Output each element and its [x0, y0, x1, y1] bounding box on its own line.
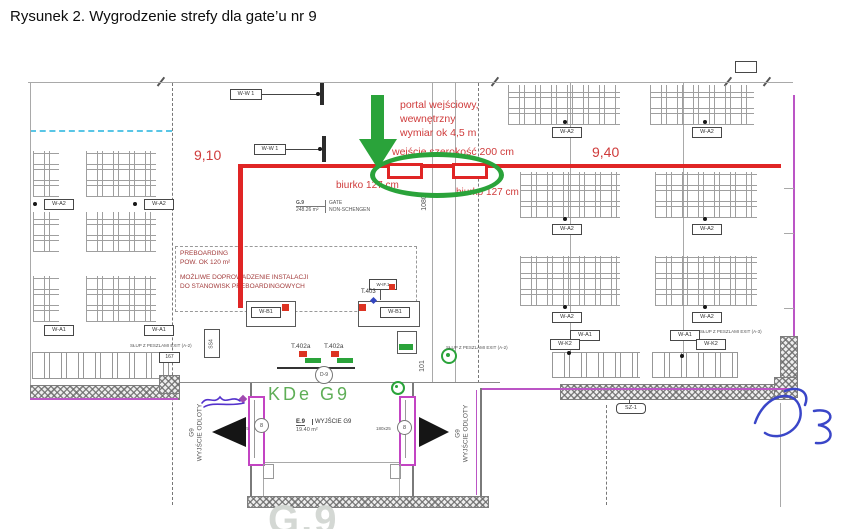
- seat-type-label: W-A2: [552, 312, 582, 323]
- exit-side-g9: G9: [454, 429, 462, 438]
- slup-note-right: SŁUP Z PESZLAMI EXIT (A-3): [700, 329, 762, 334]
- gate-reader-red: [299, 351, 307, 357]
- seat-type-label: W-A2: [692, 224, 722, 235]
- jamb-detail: [263, 464, 274, 479]
- seat-cluster: [520, 172, 620, 218]
- pen-scribble: [806, 405, 846, 453]
- ww1-leader: [258, 94, 318, 95]
- seat-cluster: [655, 172, 757, 218]
- column-marker-box: [735, 61, 757, 73]
- gate-name: GATE: [329, 200, 370, 207]
- bottom-wall-left-magenta: [30, 398, 178, 400]
- door-size-label: 180x25: [376, 426, 391, 431]
- leader-dot: [563, 120, 567, 124]
- kde-gate-text: KDe G9: [268, 384, 350, 405]
- seat-cluster: [86, 276, 156, 322]
- ww1-dot: [316, 92, 320, 96]
- bench-row: [652, 352, 738, 378]
- wall-tick: [784, 308, 794, 309]
- gate-reader-red: [331, 351, 339, 357]
- jamb-detail: [390, 464, 401, 479]
- gridline-end-dot: [680, 354, 684, 358]
- preboarding-area: POW. OK 120 m²: [180, 259, 230, 266]
- door-width-box: 167: [159, 352, 180, 363]
- exit-side-g9: G9: [188, 428, 196, 437]
- ww1-label: W-W 1: [254, 144, 286, 155]
- blue-dashed-zone-line: [30, 130, 172, 132]
- figure-canvas: Rysunek 2. Wygrodzenie strefy dla gate’u…: [0, 0, 852, 529]
- bench-row: [32, 352, 174, 379]
- leader-dot: [563, 305, 567, 309]
- slup-note-left: SŁUP Z PESZLAMI EXIT (A-2): [130, 343, 192, 348]
- ww1-dot: [318, 147, 322, 151]
- seat-type-label: W-A2: [552, 127, 582, 138]
- seat-type-label: W-A2: [144, 199, 174, 210]
- pen-scribble: [745, 383, 815, 445]
- ww1-post: [320, 83, 324, 105]
- axis-dashdot-line: [606, 405, 607, 505]
- room-top-wall: [178, 382, 500, 383]
- room-big-text: G.9: [268, 498, 338, 529]
- d9-marker: D-9: [315, 366, 333, 384]
- column-hatched: [159, 375, 180, 394]
- portal-arrow-shaft: [371, 95, 384, 140]
- gate-area: 248.26 m²: [296, 207, 326, 213]
- seat-strip: [33, 276, 59, 322]
- desk-label: W-B1: [380, 307, 410, 318]
- gate-area-tag: G.9 GATE 248.26 m² NON-SCHENGEN: [296, 200, 370, 213]
- leader-dot: [133, 202, 137, 206]
- gate-code: G.9: [296, 200, 326, 207]
- exit-side-text-right: G9 WYJŚCIE ODLOTY: [454, 397, 471, 471]
- exit-room-code: E.9: [296, 419, 305, 426]
- desk-marker-red: [359, 304, 366, 311]
- t402a-label: T.402a: [324, 343, 344, 350]
- portal-arrow-head: [359, 139, 397, 169]
- leader-dot: [33, 202, 37, 206]
- exit-room-name: WYJŚCIE G9: [312, 419, 351, 425]
- door-number: 8: [260, 423, 263, 429]
- seat-type-label: W-K2: [696, 339, 726, 350]
- seat-cluster: [655, 256, 757, 306]
- preboarding-title: PREBOARDING: [180, 250, 228, 257]
- corridor-wall: [480, 388, 482, 498]
- green-sensor-dot: [446, 353, 450, 357]
- desk-label: W-B1: [251, 307, 281, 318]
- seat-cluster: [508, 85, 620, 125]
- door-number-badge: 8: [254, 418, 269, 433]
- door-number-badge: 8: [397, 420, 412, 435]
- pen-scribble: [200, 391, 248, 409]
- room-divider: [263, 462, 400, 463]
- green-sensor: [391, 381, 405, 395]
- left-wall-line: [30, 82, 31, 400]
- seat-type-label: W-A2: [692, 127, 722, 138]
- dimension-101-text: 101: [419, 360, 426, 372]
- seat-cluster: [650, 85, 754, 125]
- t403-red-marker: [389, 284, 395, 290]
- seat-type-label: W-A1: [44, 325, 74, 336]
- gridline-end-dot: [567, 351, 571, 355]
- fence-line-vertical: [238, 164, 243, 308]
- ww1-label: W-W 1: [230, 89, 262, 100]
- seat-cluster: [86, 151, 156, 197]
- seat-strip: [33, 151, 59, 197]
- door-number: 8: [403, 425, 406, 431]
- seat-type-label: W-A1: [144, 325, 174, 336]
- green-sensor-dot: [395, 385, 398, 388]
- seat-type-label: W-K2: [550, 339, 580, 350]
- top-wall-line: [28, 82, 793, 83]
- fence-dim-right: 9,40: [592, 144, 619, 160]
- exit-side-label: WYJŚCIE ODLOTY: [196, 404, 204, 461]
- gate-zone: NON-SCHENGEN: [329, 207, 370, 213]
- leader-dot: [703, 305, 707, 309]
- as-box-green-bar: [399, 344, 413, 350]
- wall-tick: [784, 233, 794, 234]
- t403-label: T.403: [361, 289, 376, 295]
- leader-dot: [703, 217, 707, 221]
- ww1-post: [322, 136, 326, 162]
- d9-text: D-9: [320, 372, 328, 378]
- ww1-leader: [282, 149, 322, 150]
- exit-side-label: WYJŚCIE ODLOTY: [462, 405, 470, 462]
- portal-note-line3: wymiar ok 4,5 m: [400, 127, 476, 139]
- portal-note-line2: wewnętrzny: [400, 113, 455, 125]
- axis-dashdot-line: [478, 83, 479, 383]
- seat-type-label: W-A2: [44, 199, 74, 210]
- ss4-text: SS4: [209, 339, 215, 348]
- wall-tick: [784, 188, 794, 189]
- slup-note-center: SŁUP Z PESZLAMI EXIT (A-2): [446, 345, 508, 350]
- bench-row: [552, 352, 640, 378]
- desk-marker-red: [282, 304, 289, 311]
- seat-cluster: [86, 212, 156, 252]
- seat-cluster: [520, 256, 620, 306]
- gate-bar-green: [337, 358, 353, 363]
- seat-type-label: W-A2: [692, 312, 722, 323]
- seat-type-label: W-A2: [552, 224, 582, 235]
- leader-dot: [563, 217, 567, 221]
- t402a-label: T.402a: [291, 343, 311, 350]
- gate-bar-green: [305, 358, 321, 363]
- fence-dim-left: 9,10: [194, 147, 221, 163]
- portal-note-line1: portal wejściowy,: [400, 99, 479, 111]
- fence-line-horizontal: [240, 164, 781, 168]
- axis-dashdot-line: [172, 83, 173, 505]
- sz1-label: SZ-1: [616, 403, 646, 414]
- preboarding-note-1: MOŻLIWE DOPROWADZENIE INSTALACJI: [180, 274, 308, 281]
- leader-dot: [703, 120, 707, 124]
- exit-room-area: 19.40 m²: [296, 427, 318, 433]
- figure-caption: Rysunek 2. Wygrodzenie strefy dla gate’u…: [10, 8, 317, 25]
- exit-arrow-left: [212, 417, 246, 447]
- exit-arrow-right: [419, 417, 449, 447]
- seat-strip: [33, 212, 59, 252]
- corridor-wall-magenta: [476, 390, 477, 495]
- dimension-101: 101: [416, 346, 428, 386]
- as-box: [397, 331, 417, 354]
- ss4-box: SS4: [204, 329, 220, 358]
